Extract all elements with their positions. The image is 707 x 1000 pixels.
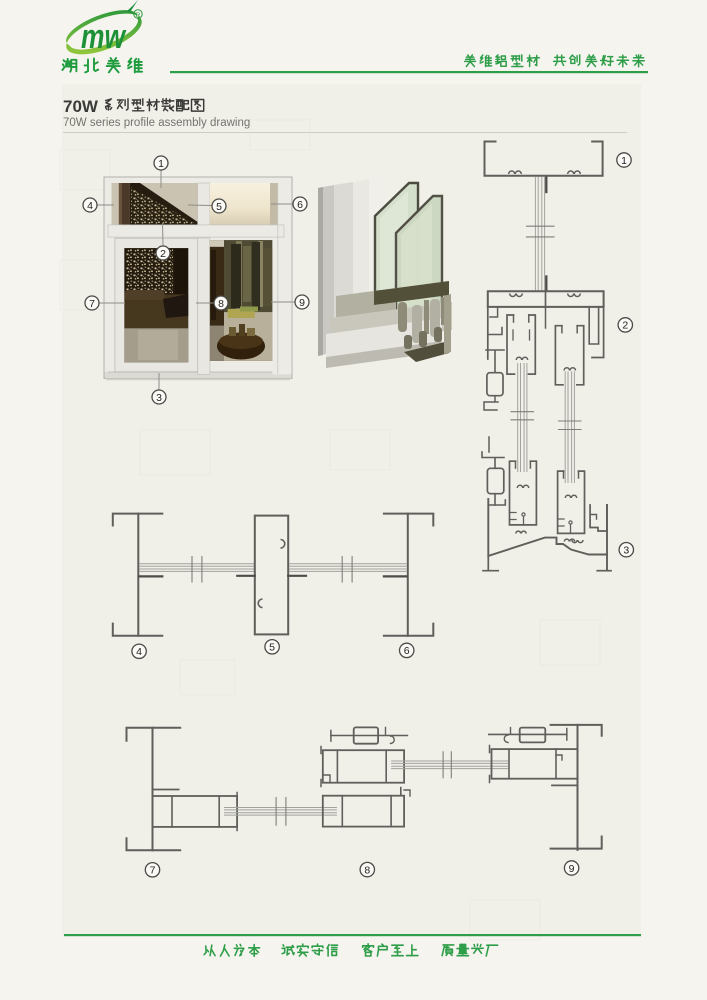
svg-text:3: 3 [156, 392, 162, 404]
svg-text:3: 3 [623, 545, 629, 557]
svg-text:7: 7 [89, 298, 95, 310]
svg-text:5: 5 [216, 201, 222, 213]
svg-text:2: 2 [160, 248, 166, 260]
svg-text:mw: mw [81, 18, 127, 56]
svg-text:5: 5 [269, 642, 275, 654]
svg-text:4: 4 [136, 646, 142, 658]
svg-text:6: 6 [297, 199, 303, 211]
svg-text:2: 2 [622, 320, 628, 332]
svg-text:1: 1 [158, 158, 164, 170]
svg-text:8: 8 [218, 298, 224, 310]
svg-text:70W: 70W [63, 97, 99, 116]
svg-text:R: R [136, 12, 141, 19]
svg-text:9: 9 [569, 863, 575, 875]
svg-text:7: 7 [150, 865, 156, 877]
svg-text:6: 6 [404, 645, 410, 657]
svg-text:8: 8 [364, 864, 370, 876]
svg-text:70W series profile assembly dr: 70W series profile assembly drawing [63, 117, 250, 129]
svg-text:1: 1 [621, 155, 627, 167]
svg-text:9: 9 [299, 297, 305, 309]
svg-text:4: 4 [87, 200, 93, 212]
